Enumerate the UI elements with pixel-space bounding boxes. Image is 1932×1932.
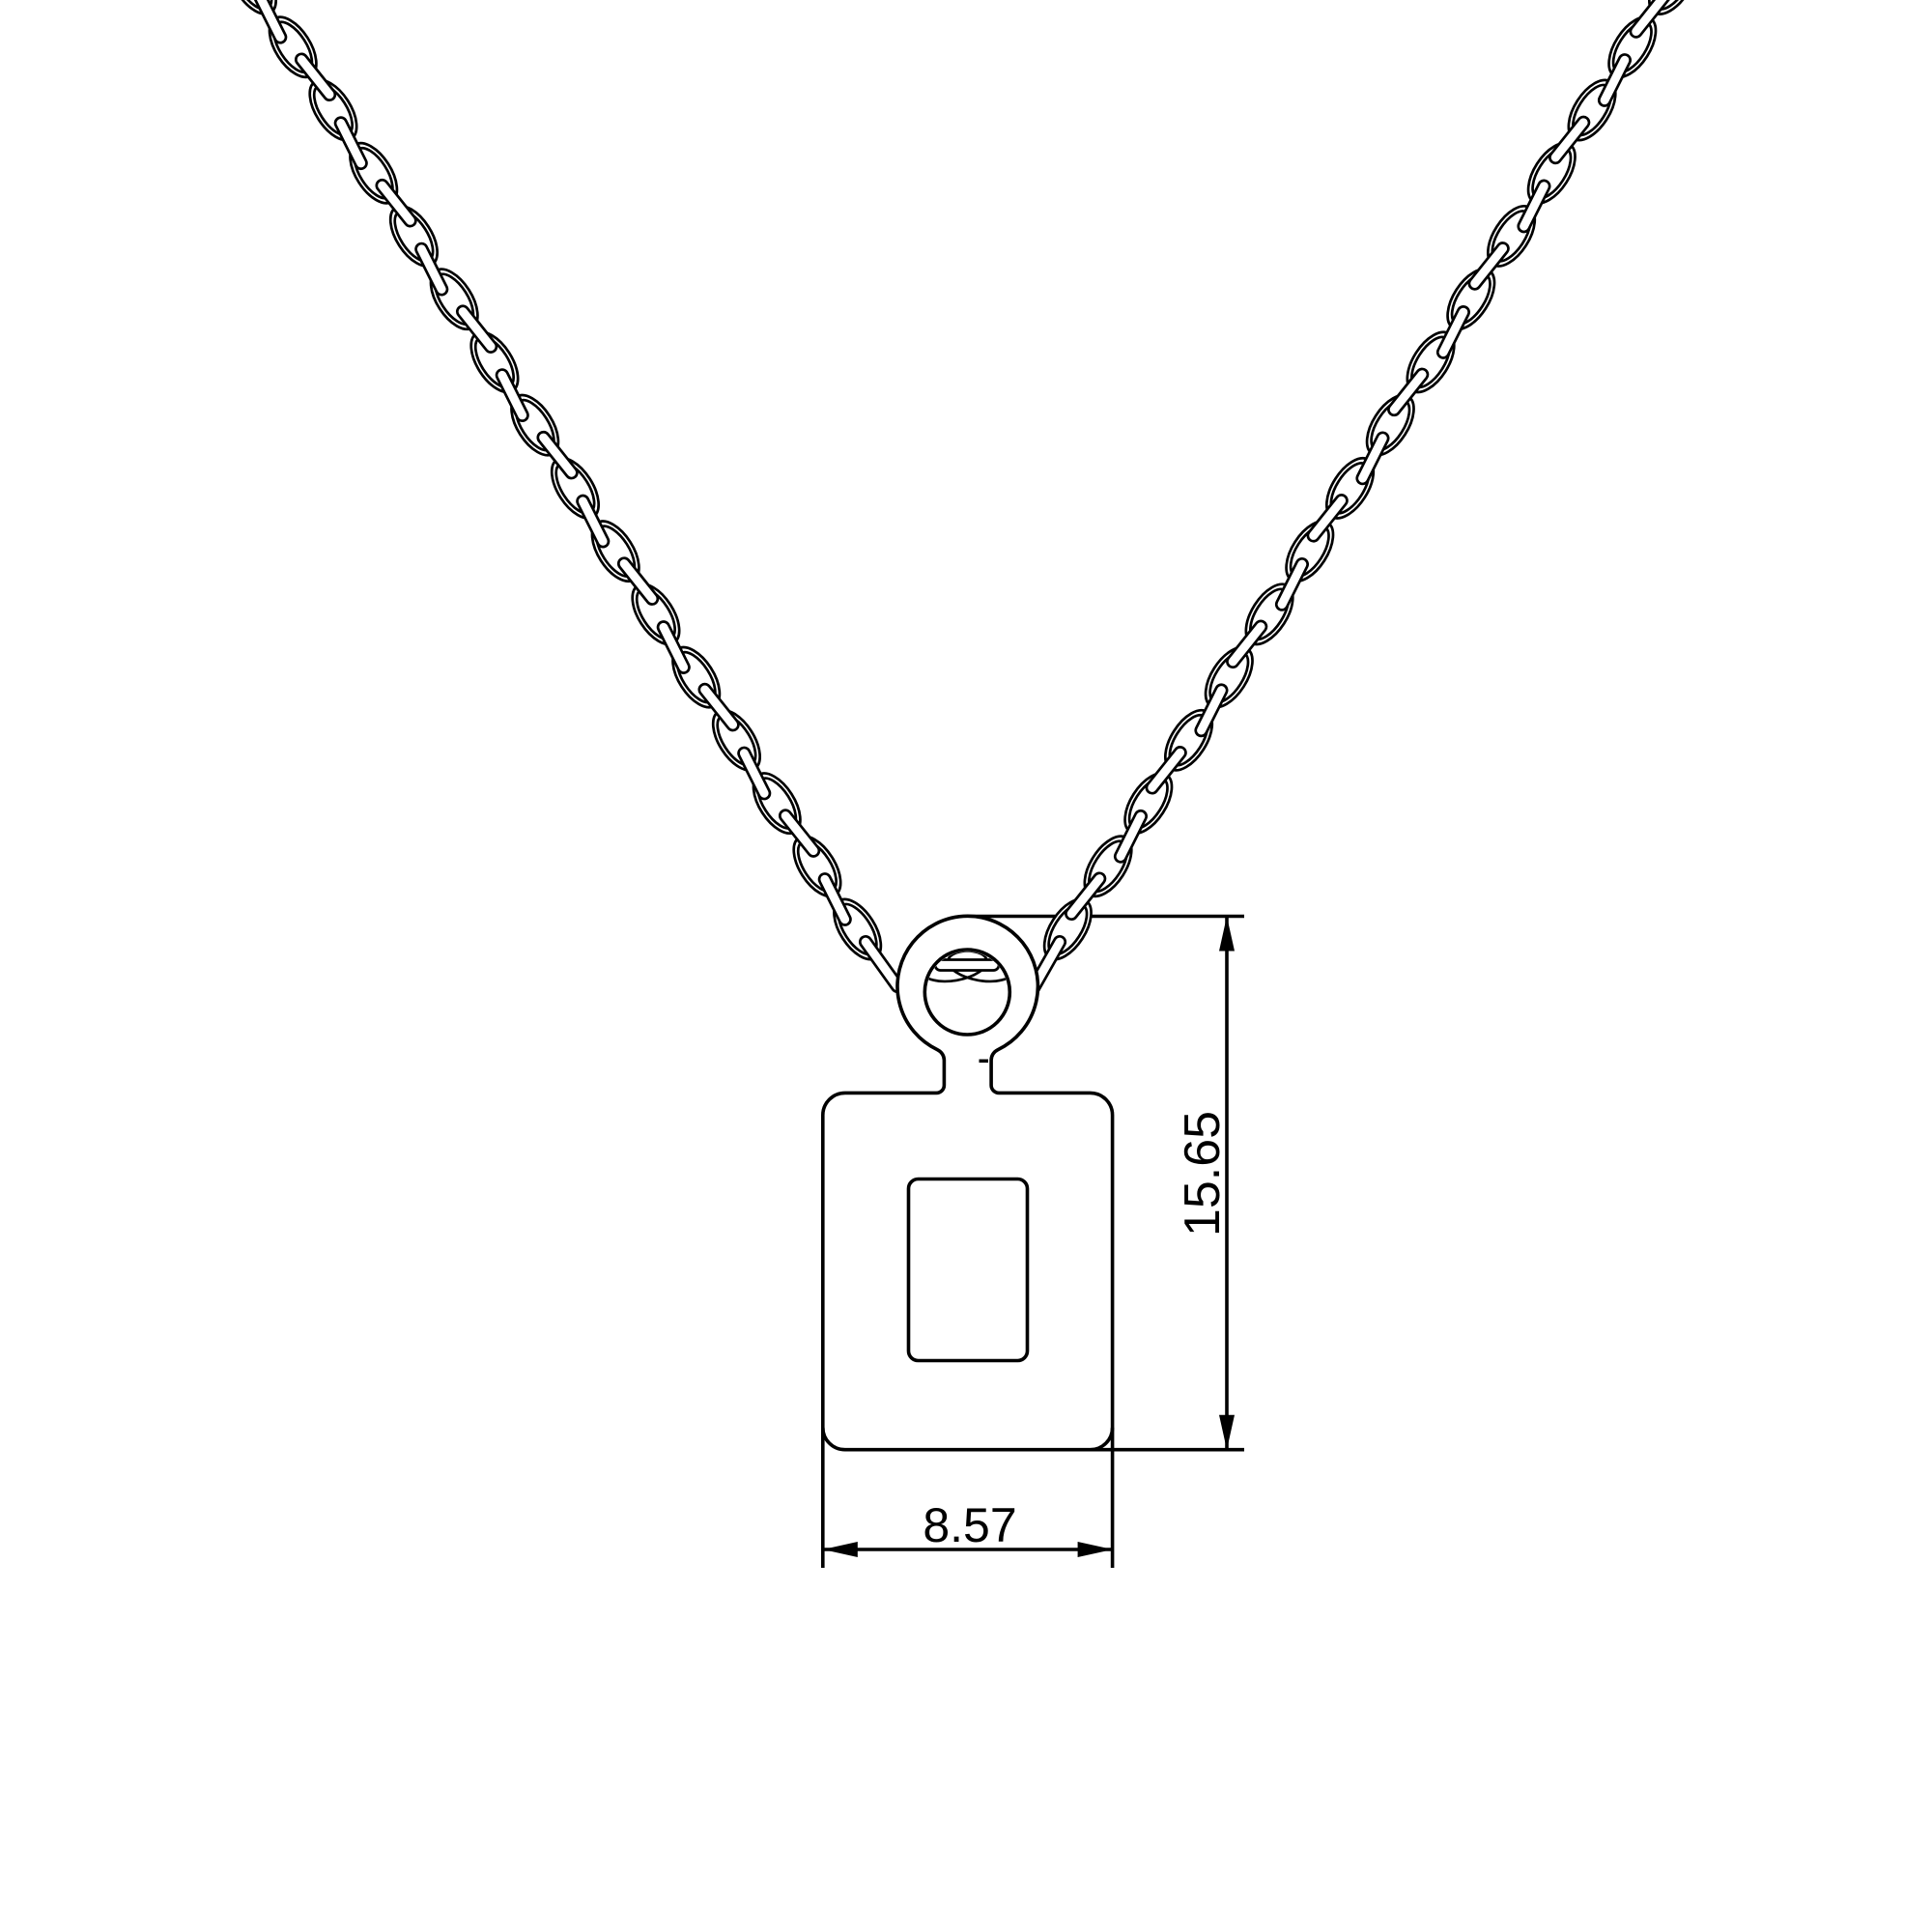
svg-text:15.65: 15.65 [1175, 1111, 1231, 1236]
svg-text:8.57: 8.57 [923, 1498, 1016, 1552]
